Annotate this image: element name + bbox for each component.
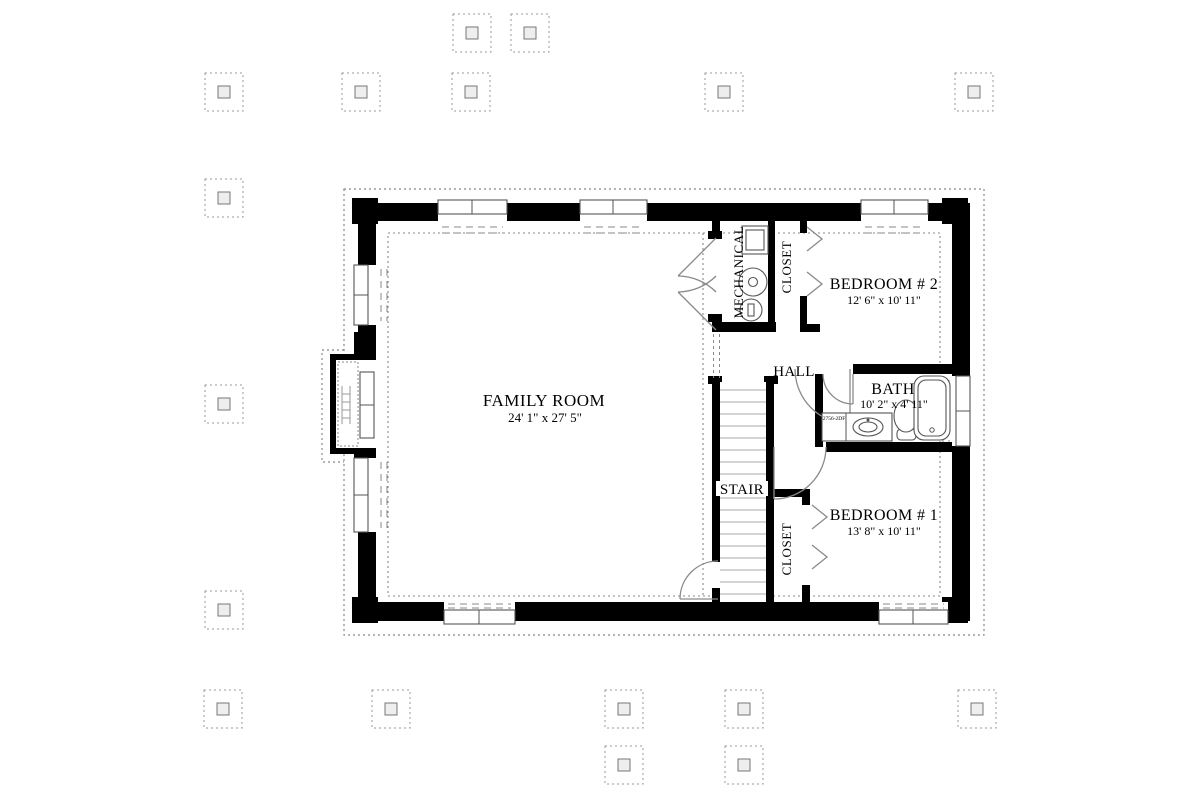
floor-plan-drawing: FAMILY ROOM 24' 1" x 27' 5" BEDROOM # 2 … — [0, 0, 1200, 800]
window — [861, 200, 928, 233]
cased-opening — [714, 334, 720, 378]
bath-north-wall — [853, 364, 952, 374]
closet1-wall-foot — [807, 324, 820, 332]
bath-label: BATH — [871, 381, 914, 398]
post-footing — [205, 385, 243, 423]
post-footing — [452, 73, 490, 111]
post-footing — [605, 690, 643, 728]
closet2-bifold-chevrons — [812, 505, 827, 569]
family-room-dims: 24' 1" x 27' 5" — [508, 410, 582, 425]
post-footing — [511, 14, 549, 52]
mech-closet-divider-wall — [768, 221, 775, 332]
outer-dashed-outline — [322, 189, 984, 635]
post-footing — [205, 591, 243, 629]
floor-plan-canvas: FAMILY ROOM 24' 1" x 27' 5" BEDROOM # 2 … — [0, 0, 1200, 800]
closet2-east-wall-stub — [802, 489, 810, 505]
mech-south-wall — [712, 322, 776, 332]
corner-pilaster — [942, 198, 968, 224]
bath-door — [823, 374, 853, 404]
egress-window-well — [330, 354, 376, 454]
post-footing — [342, 73, 380, 111]
post-footing — [605, 746, 643, 784]
corner-pilaster — [352, 198, 378, 224]
closet1-east-wall-stub — [800, 221, 807, 233]
post-footing — [725, 746, 763, 784]
post-footing — [205, 73, 243, 111]
post-footing — [705, 73, 743, 111]
corner-pilaster — [352, 597, 378, 623]
closet1-east-wall-stub — [800, 296, 807, 332]
closet-upper-label: CLOSET — [779, 241, 794, 294]
post-footing — [204, 690, 242, 728]
window — [438, 200, 507, 233]
door-jamb — [708, 231, 722, 239]
window — [444, 602, 515, 624]
bedroom1-label: BEDROOM # 1 — [830, 507, 938, 524]
post-footing — [725, 690, 763, 728]
window — [354, 265, 387, 325]
window — [580, 200, 647, 233]
windows — [354, 200, 970, 624]
post-footing — [372, 690, 410, 728]
window — [879, 602, 948, 624]
post-footing — [453, 14, 491, 52]
bath-south-bedroom1-wall — [826, 442, 952, 452]
bedroom1-dims: 13' 8" x 10' 11" — [847, 524, 921, 538]
stair-west-wall-stub — [712, 588, 720, 602]
bedroom2-dims: 12' 6" x 10' 11" — [847, 293, 921, 307]
window — [354, 458, 387, 532]
stair-label: STAIR — [720, 482, 764, 498]
hall-label: HALL — [773, 364, 815, 380]
room-labels: FAMILY ROOM 24' 1" x 27' 5" BEDROOM # 2 … — [483, 226, 938, 576]
stair-west-wall — [712, 380, 720, 562]
vanity-code-label: 2756-2DF — [823, 416, 846, 422]
mechanical-label: MECHANICAL — [731, 226, 746, 319]
closet-lower-label: CLOSET — [779, 523, 794, 576]
post-footing — [955, 73, 993, 111]
bath-dims: 10' 2" x 4' 11" — [860, 397, 928, 411]
family-room-label: FAMILY ROOM — [483, 391, 605, 410]
closet2-east-wall-stub — [802, 585, 810, 602]
bedroom2-label: BEDROOM # 2 — [830, 276, 938, 293]
wall-pilaster — [354, 332, 376, 356]
post-footing — [958, 690, 996, 728]
post-footing — [205, 179, 243, 217]
closet1-bifold-chevrons — [807, 227, 822, 296]
